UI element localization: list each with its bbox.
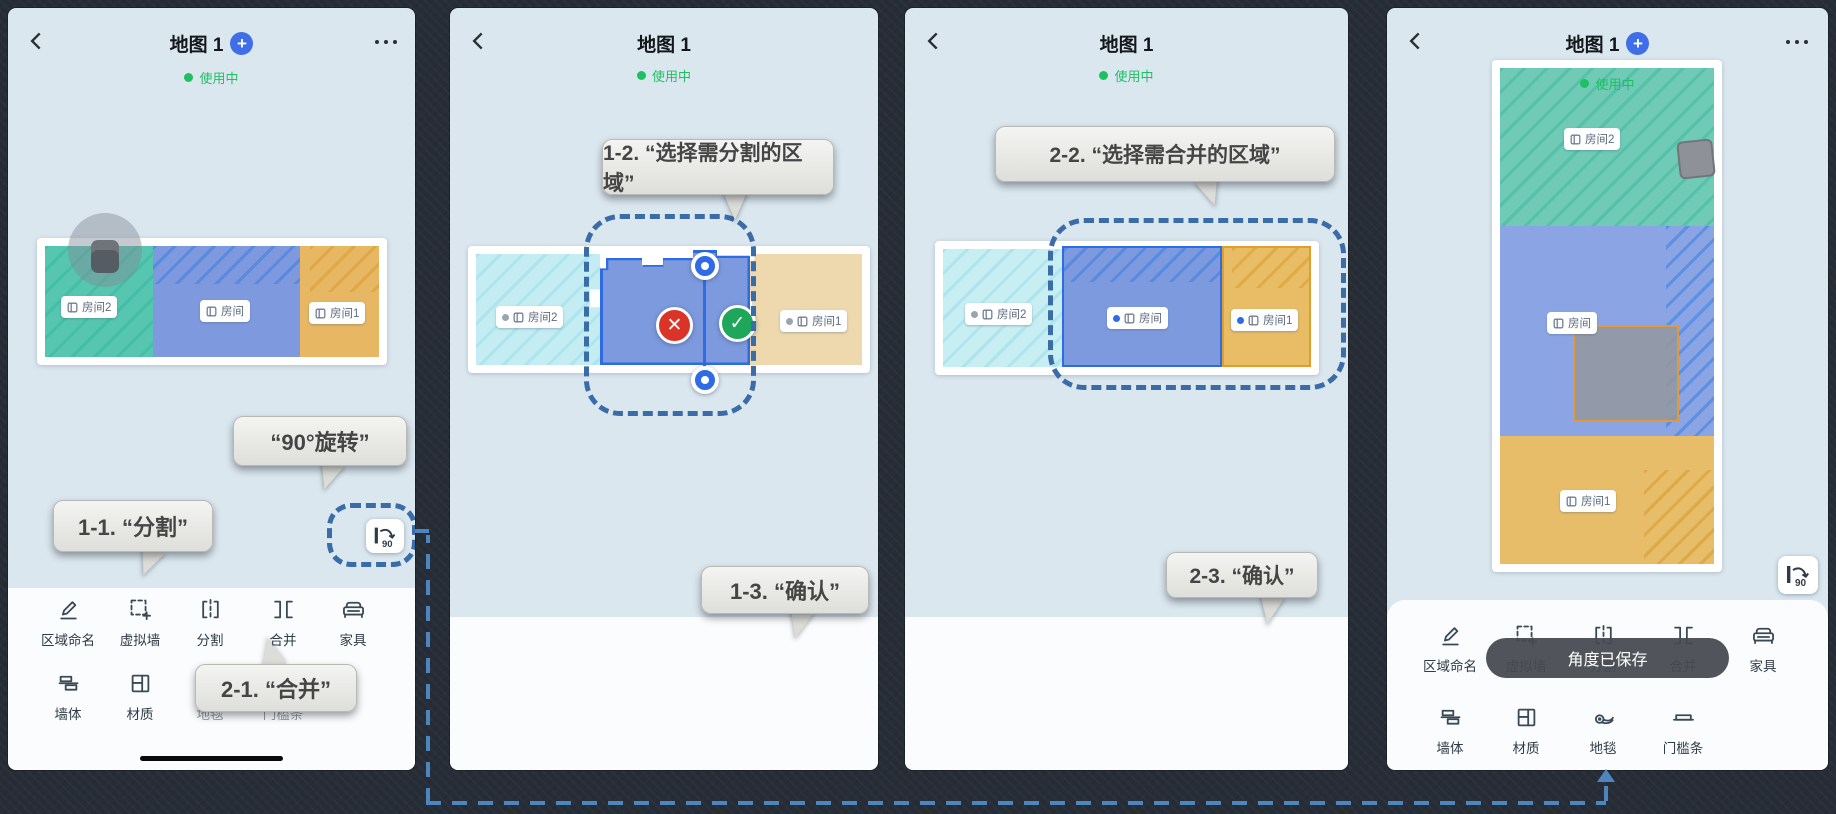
room-icon bbox=[982, 309, 993, 320]
room-icon bbox=[1553, 318, 1564, 329]
page-title-row: 地图 1 + bbox=[8, 30, 415, 57]
tool-threshold[interactable]: 门槛条 bbox=[1647, 704, 1719, 757]
room-label: 房间2 bbox=[1564, 128, 1620, 150]
rotate-90-button[interactable]: 90 bbox=[1778, 556, 1818, 594]
room-label: 房间2 bbox=[61, 296, 117, 318]
action-panel: 取消 合并 确认 已选择2个区域 bbox=[905, 617, 1348, 770]
rotate-highlight-box bbox=[327, 503, 415, 567]
room-dot-icon bbox=[502, 314, 509, 321]
callout-split: 1-1. “分割” bbox=[53, 500, 213, 552]
connector-arrowhead bbox=[1597, 769, 1615, 782]
room-icon bbox=[513, 312, 524, 323]
tool-material[interactable]: 材质 bbox=[1490, 704, 1562, 757]
room-icon bbox=[315, 308, 326, 319]
status-dot-icon bbox=[1580, 79, 1589, 88]
sofa-icon bbox=[340, 596, 367, 623]
carpet-zone[interactable] bbox=[1573, 325, 1679, 422]
virtual-wall-icon bbox=[127, 596, 154, 623]
room-label: 房间2 bbox=[965, 303, 1032, 325]
pencil-icon bbox=[55, 596, 82, 623]
tool-split[interactable]: 分割 bbox=[174, 596, 246, 649]
screen-merge-mode: 地图 1 使用中 房间2 房间 bbox=[905, 8, 1348, 770]
screen-split-mode: 地图 1 使用中 房间2 房间1 bbox=[450, 8, 878, 770]
threshold-icon bbox=[1670, 704, 1697, 731]
room-label: 房间1 bbox=[1560, 490, 1616, 512]
connector-vertical bbox=[426, 535, 430, 803]
callout-select-area: 2-2. “选择需合并的区域” bbox=[995, 126, 1335, 182]
split-icon bbox=[197, 596, 224, 623]
rotate-90-icon: 90 bbox=[1783, 560, 1813, 590]
tool-furniture[interactable]: 家具 bbox=[317, 596, 389, 649]
room-label: 房间1 bbox=[309, 302, 365, 324]
page-title-row: 地图 1 + bbox=[1387, 30, 1828, 57]
tool-furniture[interactable]: 家具 bbox=[1727, 622, 1799, 675]
map-status-badge: 使用中 bbox=[1387, 74, 1828, 93]
callout-confirm: 1-3. “确认” bbox=[701, 566, 869, 614]
more-menu-button[interactable] bbox=[1786, 40, 1808, 44]
room-icon bbox=[67, 302, 78, 313]
tool-material[interactable]: 材质 bbox=[104, 670, 176, 723]
callout-rotate: “90°旋转” bbox=[233, 416, 407, 466]
wall-icon bbox=[55, 670, 82, 697]
room-label: 房间 bbox=[1547, 312, 1597, 334]
tool-wall[interactable]: 墙体 bbox=[32, 670, 104, 723]
callout-merge: 2-1. “合并” bbox=[195, 664, 357, 712]
status-dot-icon bbox=[184, 73, 193, 82]
page-title: 地图 1 bbox=[637, 30, 691, 57]
edit-toolbar: 区域命名 虚拟墙 分割 合并 家具 墙体 材质 地毯 门槛条 bbox=[1387, 600, 1828, 770]
map-preview: 房间2 房间 房间1 bbox=[1492, 60, 1722, 572]
callout-confirm: 2-3. “确认” bbox=[1166, 552, 1318, 598]
action-panel: 取消 分割 确认 请移动分割线进行分割 bbox=[450, 617, 878, 770]
room-label: 房间2 bbox=[496, 306, 563, 328]
tool-carpet[interactable]: 地毯 bbox=[1567, 704, 1639, 757]
more-menu-button[interactable] bbox=[375, 40, 397, 44]
map-status-badge: 使用中 bbox=[450, 66, 878, 85]
room-dot-icon bbox=[786, 318, 793, 325]
robot-vacuum-icon bbox=[1676, 138, 1716, 180]
material-icon bbox=[1513, 704, 1540, 731]
room-icon bbox=[1570, 134, 1581, 145]
room-dot-icon bbox=[971, 311, 978, 318]
page-title: 地图 1 bbox=[170, 30, 224, 57]
connector-bottom bbox=[426, 801, 1606, 805]
tool-virtual-wall[interactable]: 虚拟墙 bbox=[104, 596, 176, 649]
wall-icon bbox=[1437, 704, 1464, 731]
carpet-icon bbox=[1590, 704, 1617, 731]
callout-select-area: 1-2. “选择需分割的区域” bbox=[602, 139, 834, 195]
page-title: 地图 1 bbox=[1100, 30, 1154, 57]
screen-map-edit: 地图 1 + 使用中 房间2 房间 bbox=[8, 8, 415, 770]
room-icon bbox=[797, 316, 808, 327]
selected-area-highlight bbox=[584, 214, 756, 416]
tool-rename-area[interactable]: 区域命名 bbox=[32, 596, 104, 649]
selected-areas-highlight bbox=[1048, 218, 1346, 390]
pencil-icon bbox=[1437, 622, 1464, 649]
merge-icon bbox=[270, 596, 297, 623]
map-status-badge: 使用中 bbox=[905, 66, 1348, 85]
material-icon bbox=[127, 670, 154, 697]
toast-angle-saved: 角度已保存 bbox=[1486, 638, 1729, 678]
tool-rename-area[interactable]: 区域命名 bbox=[1414, 622, 1486, 675]
room-label: 房间1 bbox=[780, 310, 847, 332]
home-indicator[interactable] bbox=[140, 756, 283, 761]
sofa-icon bbox=[1750, 622, 1777, 649]
map-status-badge: 使用中 bbox=[8, 68, 415, 87]
room-icon bbox=[206, 306, 217, 317]
robot-vacuum-icon bbox=[91, 240, 119, 273]
room-label: 房间 bbox=[200, 300, 250, 322]
svg-text:90: 90 bbox=[1795, 578, 1807, 589]
status-dot-icon bbox=[637, 71, 646, 80]
connector-up-segment bbox=[1604, 783, 1608, 801]
walkthrough-canvas: 地图 1 + 使用中 房间2 房间 bbox=[0, 0, 1836, 814]
page-title: 地图 1 bbox=[1566, 30, 1620, 57]
add-map-button[interactable]: + bbox=[230, 32, 253, 55]
room-icon bbox=[1566, 496, 1577, 507]
screen-rotated-map: 地图 1 + 房间2 房间 bbox=[1387, 8, 1828, 770]
connector-tick bbox=[415, 529, 429, 533]
add-map-button[interactable]: + bbox=[1626, 32, 1649, 55]
tool-wall[interactable]: 墙体 bbox=[1414, 704, 1486, 757]
status-dot-icon bbox=[1099, 71, 1108, 80]
